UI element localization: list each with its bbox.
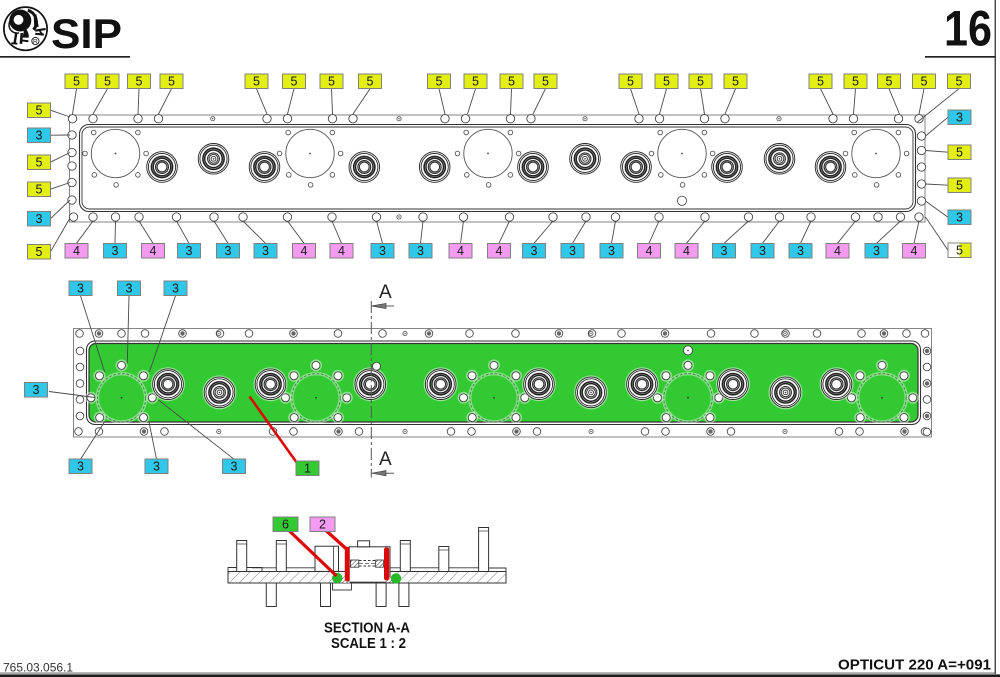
- svg-text:3: 3: [153, 460, 160, 474]
- svg-text:3: 3: [873, 244, 880, 258]
- svg-text:3: 3: [36, 212, 43, 226]
- svg-text:5: 5: [732, 75, 739, 89]
- svg-text:5: 5: [253, 75, 260, 89]
- svg-text:SIP: SIP: [51, 10, 122, 57]
- svg-text:5: 5: [36, 104, 43, 118]
- svg-text:3: 3: [569, 244, 576, 258]
- svg-text:3: 3: [77, 460, 84, 474]
- svg-text:16: 16: [944, 1, 992, 57]
- svg-text:R: R: [33, 39, 38, 46]
- svg-text:5: 5: [367, 75, 374, 89]
- svg-text:SCALE 1 : 2: SCALE 1 : 2: [331, 636, 406, 652]
- svg-text:3: 3: [262, 244, 269, 258]
- svg-text:5: 5: [852, 75, 859, 89]
- svg-text:5: 5: [508, 75, 515, 89]
- svg-text:3: 3: [956, 211, 963, 225]
- svg-text:5: 5: [436, 75, 443, 89]
- svg-text:5: 5: [73, 75, 80, 89]
- svg-text:3: 3: [417, 244, 424, 258]
- svg-text:3: 3: [225, 244, 232, 258]
- svg-text:4: 4: [683, 244, 690, 258]
- svg-text:3: 3: [36, 129, 43, 143]
- svg-text:A: A: [379, 449, 392, 470]
- svg-text:5: 5: [627, 75, 634, 89]
- svg-text:OPTICUT 220 A=+091: OPTICUT 220 A=+091: [838, 657, 991, 674]
- svg-text:3: 3: [77, 282, 84, 296]
- svg-text:4: 4: [646, 244, 653, 258]
- svg-text:3: 3: [721, 244, 728, 258]
- svg-text:3: 3: [956, 111, 963, 125]
- svg-text:765.03.056.1: 765.03.056.1: [3, 661, 73, 675]
- svg-text:5: 5: [472, 75, 479, 89]
- svg-text:3: 3: [186, 244, 193, 258]
- svg-text:5: 5: [328, 75, 335, 89]
- svg-text:5: 5: [136, 75, 143, 89]
- svg-text:4: 4: [834, 244, 841, 258]
- svg-text:5: 5: [956, 179, 963, 193]
- svg-text:4: 4: [73, 244, 80, 258]
- svg-text:5: 5: [291, 75, 298, 89]
- svg-text:5: 5: [697, 75, 704, 89]
- svg-text:3: 3: [172, 282, 179, 296]
- svg-text:5: 5: [36, 183, 43, 197]
- svg-text:5: 5: [956, 244, 963, 258]
- svg-text:4: 4: [496, 244, 503, 258]
- svg-text:3: 3: [759, 244, 766, 258]
- svg-text:2: 2: [319, 518, 326, 532]
- svg-text:3: 3: [126, 282, 133, 296]
- svg-text:3: 3: [608, 244, 615, 258]
- svg-text:5: 5: [956, 146, 963, 160]
- svg-text:4: 4: [150, 244, 157, 258]
- svg-text:A: A: [379, 282, 392, 303]
- svg-text:4: 4: [457, 244, 464, 258]
- svg-text:5: 5: [886, 75, 893, 89]
- svg-text:3: 3: [531, 244, 538, 258]
- svg-text:3: 3: [797, 244, 804, 258]
- svg-text:5: 5: [956, 75, 963, 89]
- svg-text:5: 5: [817, 75, 824, 89]
- svg-text:4: 4: [338, 244, 345, 258]
- svg-text:3: 3: [231, 460, 238, 474]
- svg-text:5: 5: [663, 75, 670, 89]
- svg-text:5: 5: [36, 245, 43, 259]
- svg-text:5: 5: [921, 75, 928, 89]
- svg-text:5: 5: [542, 75, 549, 89]
- svg-text:5: 5: [104, 75, 111, 89]
- svg-text:5: 5: [36, 156, 43, 170]
- svg-text:3: 3: [112, 244, 119, 258]
- svg-text:3: 3: [33, 383, 40, 397]
- svg-text:3: 3: [379, 244, 386, 258]
- svg-text:5: 5: [168, 75, 175, 89]
- svg-text:4: 4: [911, 244, 918, 258]
- svg-text:6: 6: [282, 518, 289, 532]
- svg-text:SECTION A-A: SECTION A-A: [324, 620, 410, 636]
- svg-text:1: 1: [304, 462, 311, 476]
- svg-text:4: 4: [301, 244, 308, 258]
